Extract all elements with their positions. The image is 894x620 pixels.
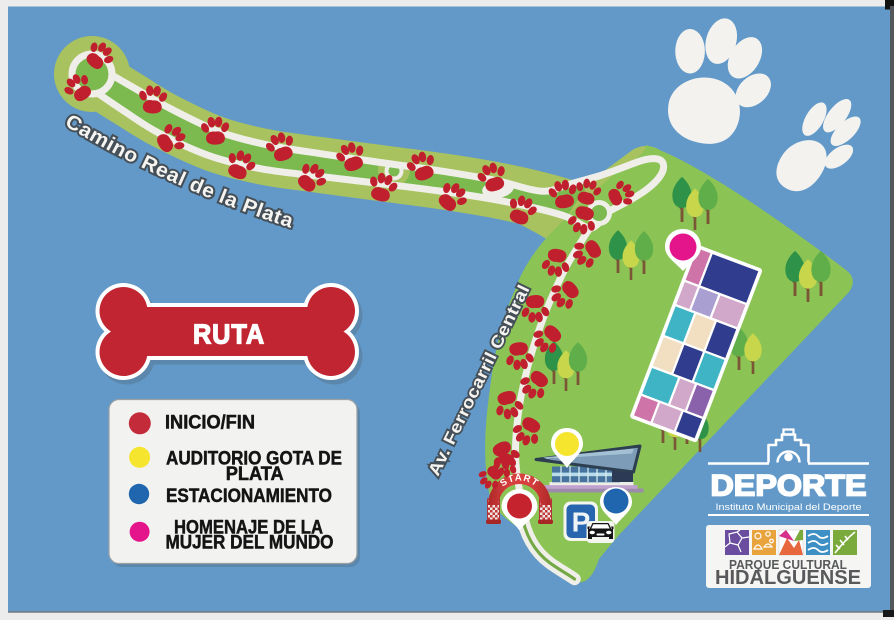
svg-text:MUJER DEL MUNDO: MUJER DEL MUNDO xyxy=(166,533,334,554)
svg-text:DEPORTE: DEPORTE xyxy=(711,470,867,503)
svg-text:RUTA: RUTA xyxy=(193,319,265,350)
svg-text:Instituto Municipal del Deport: Instituto Municipal del Deporte xyxy=(716,502,862,513)
svg-text:PLATA: PLATA xyxy=(226,464,284,485)
svg-text:INICIO/FIN: INICIO/FIN xyxy=(165,413,255,434)
svg-text:ESTACIONAMIENTO: ESTACIONAMIENTO xyxy=(166,486,332,507)
svg-text:HIDALGUENSE: HIDALGUENSE xyxy=(715,566,861,589)
